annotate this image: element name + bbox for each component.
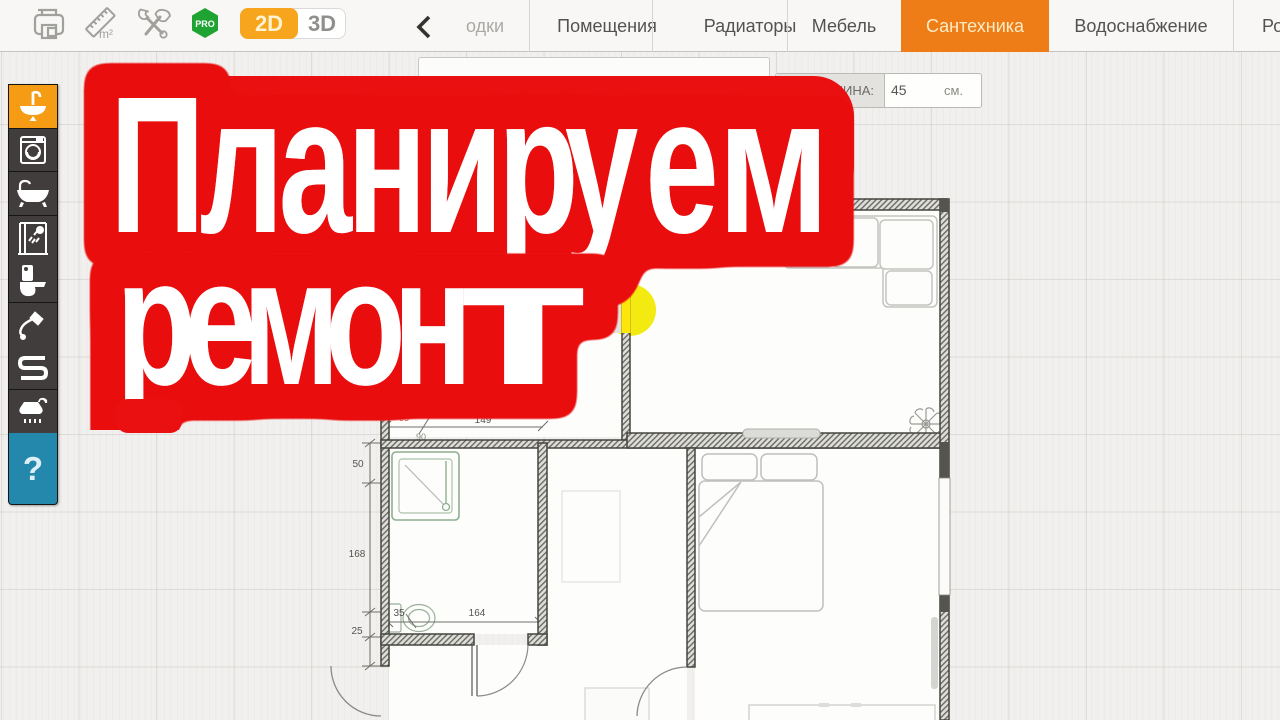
svg-text:ремонт: ремонт [116, 221, 584, 423]
